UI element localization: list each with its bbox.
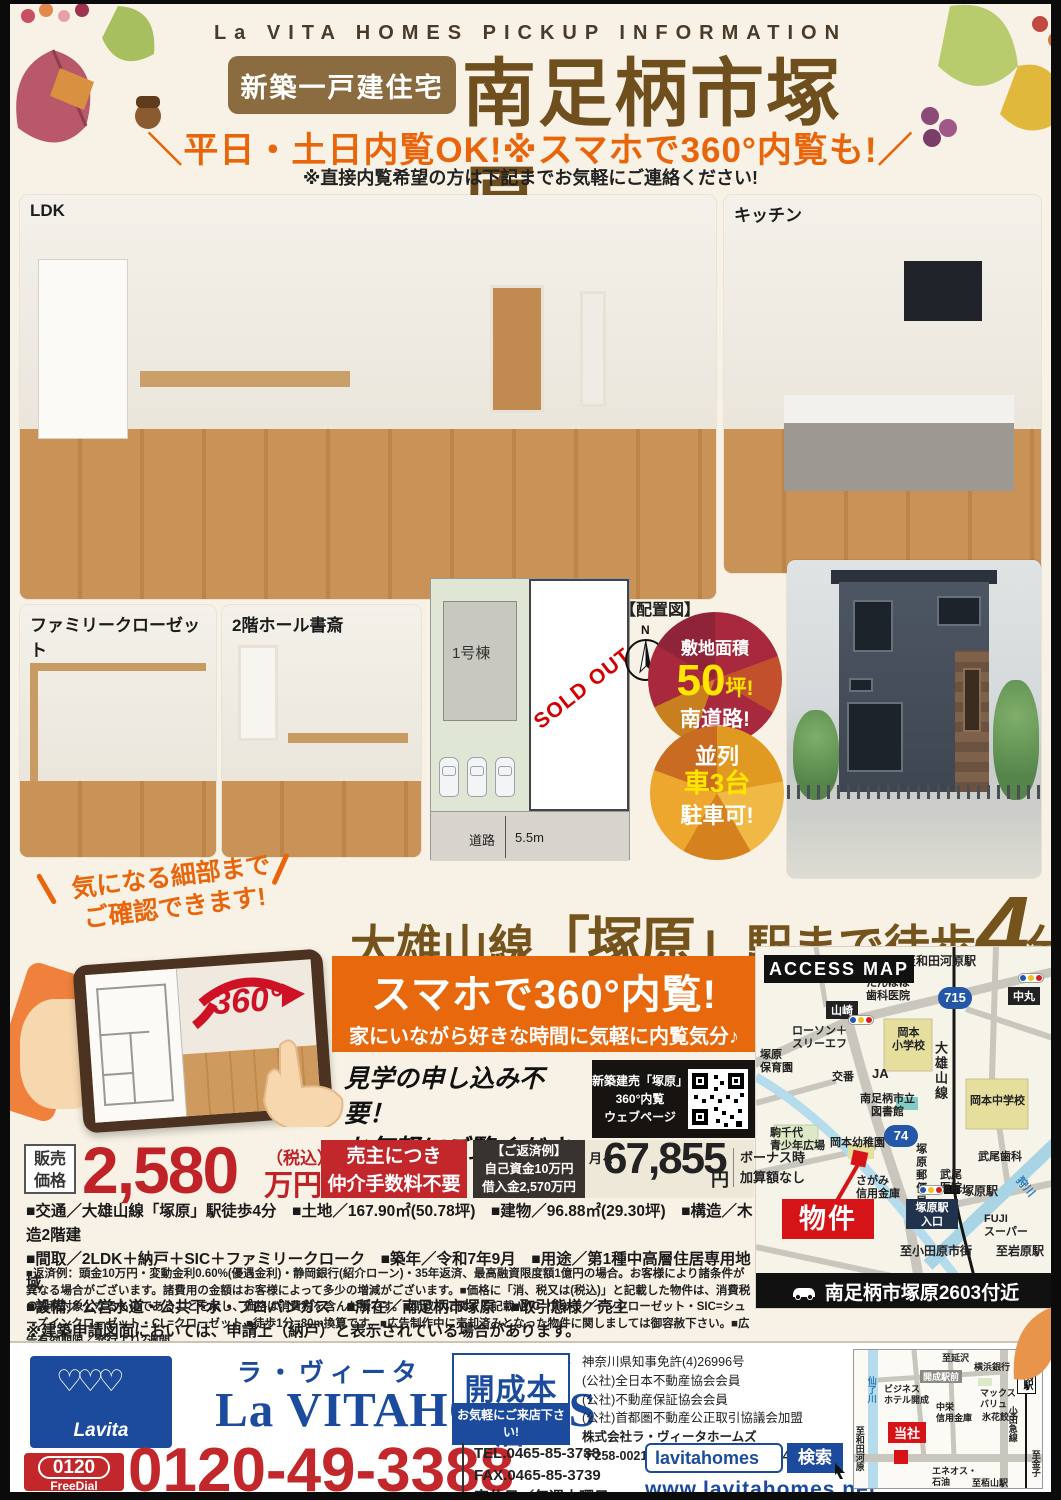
car-icon xyxy=(467,757,487,797)
badge-area-number: 50 xyxy=(677,656,726,705)
traffic-signal-icon xyxy=(1018,973,1044,983)
photo-label-kitchen: キッチン xyxy=(734,201,802,226)
freedial-logo: 0120 FreeDial xyxy=(24,1453,124,1491)
footer-map-our-office-badge: 当社 xyxy=(888,1422,926,1443)
photo-label-ldk: LDK xyxy=(30,201,65,221)
repayment-example-box: 【ご返済例】 自己資金10万円 借入金2,570万円 xyxy=(473,1140,585,1198)
promo-subtitle: 家にいながら好きな時間に気軽に内覧気分♪ xyxy=(332,1020,756,1049)
search-row: lavitahomes検索 xyxy=(645,1443,855,1473)
map-label: 武尾歯科 xyxy=(978,1151,1022,1164)
map-label-daiyuzan-line: 大雄山線 xyxy=(932,1041,947,1101)
footer-map-label: ビジネス ホテル開成 xyxy=(884,1384,929,1406)
road-label: 道路 xyxy=(469,830,495,849)
car-icon xyxy=(495,757,515,797)
property-location-badge: 物件 xyxy=(782,1199,874,1239)
lavita-hearts-icon: ♡♡♡ xyxy=(56,1364,119,1399)
floor-plan-thumbnail xyxy=(85,969,187,1123)
photo-2f-hall-study: 2階ホール書斎 xyxy=(222,605,421,857)
map-label: 岡本幼稚園 xyxy=(830,1137,885,1150)
tablet-360-illustration: 360° xyxy=(12,939,342,1144)
fine-print: ■返済例：頭金10万円・変動金利0.60%(優遇金利)・静岡銀行(紹介ローン)・… xyxy=(26,1266,756,1349)
freedial-number: 0120 xyxy=(38,1456,110,1479)
badge-area-line1: 敷地面積 xyxy=(648,612,782,659)
price-row: 販売 価格 2,580 （税込） 万円 売主につき 仲介手数料不要 【ご返済例】… xyxy=(24,1140,754,1198)
cursor-icon xyxy=(833,1463,849,1479)
details-line1: ■交通／大雄山線「塚原」駅徒歩4分 ■土地／167.90㎡(50.78坪) ■建… xyxy=(26,1200,756,1248)
contact-info: TEL.0465-85-3738 FAX.0465-85-3739 定休日／毎週… xyxy=(462,1443,609,1492)
footer-map-label: 至和田河原 xyxy=(854,1426,865,1471)
qr-code xyxy=(688,1069,748,1129)
map-label-tsukahara-station: 塚原駅 xyxy=(962,1185,998,1199)
footer-map-label-badge: 開成駅前 xyxy=(920,1370,962,1383)
price-amount: 2,580 xyxy=(82,1133,237,1207)
monthly-prefix: 月々 xyxy=(589,1152,603,1166)
photo-label-family-closet: ファミリークローゼット xyxy=(30,611,216,661)
site-plan-road: 道路 5.5m xyxy=(431,811,629,861)
site-plan-lot1: 1号棟 xyxy=(431,579,529,811)
bonus-note: ボーナス時 加算額なし xyxy=(733,1148,813,1187)
car-icon xyxy=(439,757,459,797)
property-type-badge: 新築一戸建住宅 xyxy=(228,56,456,114)
no-brokerage-fee-badge: 売主につき 仲介手数料不要 xyxy=(321,1140,467,1198)
phone-number: 0120-49-3388 xyxy=(128,1435,514,1492)
flyer-root: La VITA HOMES PICKUP INFORMATION 新築一戸建住宅… xyxy=(0,0,1061,1500)
car-icon xyxy=(791,1284,817,1300)
footer-map-label: 仙了川 xyxy=(866,1376,877,1403)
road-width-label: 5.5m xyxy=(515,830,544,845)
map-label: 塚原 保育園 xyxy=(760,1049,793,1074)
map-label: ローソン＋ スリーエフ xyxy=(792,1025,847,1050)
map-label: FUJI スーパー xyxy=(984,1213,1028,1238)
map-label: 岡本中学校 xyxy=(970,1095,1025,1108)
badge-parking-line3: 駐車可! xyxy=(650,798,784,830)
map-label: 至岩原駅 xyxy=(996,1245,1044,1259)
map-address-bar: 南足柄市塚原2603付近 xyxy=(756,1273,1051,1309)
price-unit: 万円 xyxy=(264,1162,322,1204)
footer-map-label: 横浜銀行 xyxy=(974,1362,1010,1373)
site-plan-building: 1号棟 xyxy=(443,601,517,721)
route-badge-715: 715 xyxy=(938,987,972,1009)
map-label: 駒千代 青少年広場 xyxy=(770,1127,825,1152)
photo-ldk: LDK xyxy=(20,195,716,599)
badge-parking-line1: 並列 xyxy=(650,726,784,769)
photo-family-closet: ファミリークローゼット xyxy=(20,605,216,857)
map-label: 至小田原市街 xyxy=(900,1245,972,1259)
promo-title: スマホで360°内覧! xyxy=(332,956,756,1020)
map-label: さがみ 信用金庫 xyxy=(856,1175,900,1200)
badge-parking-line2: 車3台 xyxy=(650,769,784,798)
flyer-paper: La VITA HOMES PICKUP INFORMATION 新築一戸建住宅… xyxy=(10,4,1051,1492)
site-plan-lot2-sold: SOLD OUT xyxy=(529,579,629,811)
monthly-unit: 円 xyxy=(711,1166,729,1192)
traffic-signal-icon xyxy=(918,1185,944,1195)
freedial-label: FreeDial xyxy=(24,1479,124,1492)
footer-map-label: 小田急線 xyxy=(1007,1406,1018,1442)
photo-kitchen: キッチン xyxy=(724,195,1041,573)
site-plan-diagram: 1号棟 SOLD OUT 道路 5.5m xyxy=(430,578,630,860)
footer-map-label: エネオス・ 石油 xyxy=(932,1466,977,1488)
route-badge-74: 74 xyxy=(884,1125,918,1147)
site-plan-building-label: 1号棟 xyxy=(452,642,490,663)
photo-house-exterior xyxy=(787,560,1041,878)
map-label-station-entrance: 塚原駅 入口 xyxy=(906,1199,958,1229)
license-lines: 神奈川県知事免許(4)26996号 (公社)全日本不動産協会会員 (公社)不動産… xyxy=(582,1353,852,1428)
badge-parking: 並列 車3台 駐車可! xyxy=(650,726,784,860)
footer-map-label: 至延沢 xyxy=(942,1353,969,1364)
map-label: 交番 xyxy=(832,1071,854,1084)
website-url[interactable]: www.lavitahomes.net xyxy=(645,1478,877,1492)
bubble-tick xyxy=(36,873,57,905)
shop-box: 開成本店 お気軽にご来店下さい! xyxy=(452,1353,570,1445)
monthly-amount: 67,855 xyxy=(603,1134,726,1184)
monthly-payment-box: 月々 67,855 円 ボーナス時 加算額なし xyxy=(585,1140,754,1198)
footer-map: 仙了川 至延沢 横浜銀行 開成駅前 ビジネス ホテル開成 マックス バリュ 中栄… xyxy=(853,1349,1043,1489)
badge-area-unit: 坪! xyxy=(725,677,753,700)
footer-map-kaisei-station: 開成駅 xyxy=(1017,1356,1036,1394)
map-label: JA xyxy=(872,1067,889,1082)
footer: ♡♡♡ Lavita ラ・ヴィータ ホームズ La VITAHOMES 開成本店… xyxy=(10,1341,1051,1492)
map-address-text: 南足柄市塚原2603付近 xyxy=(825,1278,1019,1305)
access-map: ACCESS MAP 至和田河原駅 たんぽぽ 歯科医院 中丸 山崎 715 ロー… xyxy=(755,946,1051,1309)
sold-out-label: SOLD OUT xyxy=(528,643,637,736)
photo-label-2f-hall-study: 2階ホール書斎 xyxy=(232,611,343,636)
header-note: ※直接内覧希望の方は下記までお気軽にご連絡ください! xyxy=(10,164,1051,190)
price-label: 販売 価格 xyxy=(24,1144,76,1194)
detail-check-bubble: 気になる細部まで ご確認できます! xyxy=(55,848,291,938)
map-label: 南足柄市立 図書館 xyxy=(860,1093,915,1118)
map-label: 至和田河原駅 xyxy=(904,955,976,969)
traffic-signal-icon xyxy=(848,1015,874,1025)
footer-map-label: 至栢山駅 xyxy=(972,1478,1008,1489)
map-label: 岡本 小学校 xyxy=(892,1027,925,1052)
qr-panel: 新築建売「塚原」 360°内覧 ウェブページ xyxy=(592,1060,756,1138)
promo-360-box: スマホで360°内覧! 家にいながら好きな時間に気軽に内覧気分♪ xyxy=(332,956,756,1052)
map-label-badge: 中丸 xyxy=(1008,987,1040,1005)
search-input[interactable]: lavitahomes xyxy=(645,1443,783,1473)
access-map-title: ACCESS MAP xyxy=(764,955,914,983)
qr-caption: 新築建売「塚原」 360°内覧 ウェブページ xyxy=(592,1072,688,1126)
footer-map-label: 中栄 信用金庫 xyxy=(936,1402,972,1424)
badge-360: 360° xyxy=(189,968,305,1032)
footer-map-label: 至金子 xyxy=(1030,1450,1041,1477)
